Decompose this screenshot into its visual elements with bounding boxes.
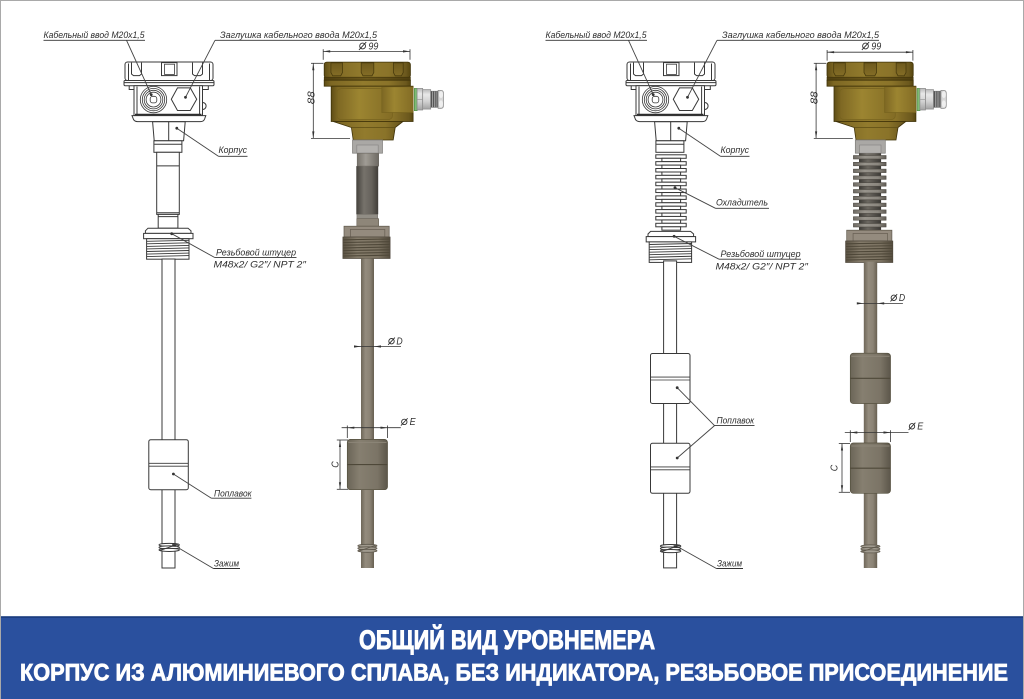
svg-text:E: E	[917, 422, 923, 433]
svg-text:Кабельный ввод М20х1,5: Кабельный ввод М20х1,5	[546, 30, 648, 41]
svg-text:D: D	[396, 336, 402, 347]
svg-text:Зажим: Зажим	[214, 558, 239, 569]
svg-text:Поплавок: Поплавок	[717, 416, 755, 427]
svg-text:99: 99	[368, 40, 378, 52]
svg-text:Резьбовой штуцер: Резьбовой штуцер	[216, 247, 297, 258]
svg-text:E: E	[410, 417, 416, 428]
svg-text:Поплавок: Поплавок	[214, 488, 252, 499]
svg-text:Резьбовой штуцер: Резьбовой штуцер	[721, 249, 802, 260]
svg-text:99: 99	[871, 40, 881, 52]
svg-text:Кабельный ввод М20х1,5: Кабельный ввод М20х1,5	[44, 30, 146, 41]
svg-text:88: 88	[808, 91, 820, 104]
svg-text:М48х2/ G2″/ NPT 2″: М48х2/ G2″/ NPT 2″	[214, 259, 307, 270]
svg-text:88: 88	[306, 91, 318, 104]
svg-text:Корпус: Корпус	[219, 145, 248, 156]
svg-text:Охладитель: Охладитель	[716, 197, 768, 208]
svg-text:Корпус: Корпус	[721, 145, 750, 156]
svg-text:D: D	[899, 293, 905, 304]
svg-text:М48х2/ G2″/ NPT 2″: М48х2/ G2″/ NPT 2″	[716, 261, 809, 272]
svg-text:Зажим: Зажим	[717, 558, 742, 569]
svg-text:Заглушка кабельного ввода М20х: Заглушка кабельного ввода М20х1,5	[722, 30, 880, 41]
svg-text:ОБЩИЙ ВИД УРОВНЕМЕРА: ОБЩИЙ ВИД УРОВНЕМЕРА	[359, 624, 655, 655]
svg-text:КОРПУС ИЗ АЛЮМИНИЕВОГО СПЛАВА,: КОРПУС ИЗ АЛЮМИНИЕВОГО СПЛАВА, БЕЗ ИНДИК…	[20, 660, 1008, 686]
svg-text:Заглушка кабельного ввода М20х: Заглушка кабельного ввода М20х1,5	[220, 30, 378, 41]
svg-text:C: C	[829, 464, 840, 471]
